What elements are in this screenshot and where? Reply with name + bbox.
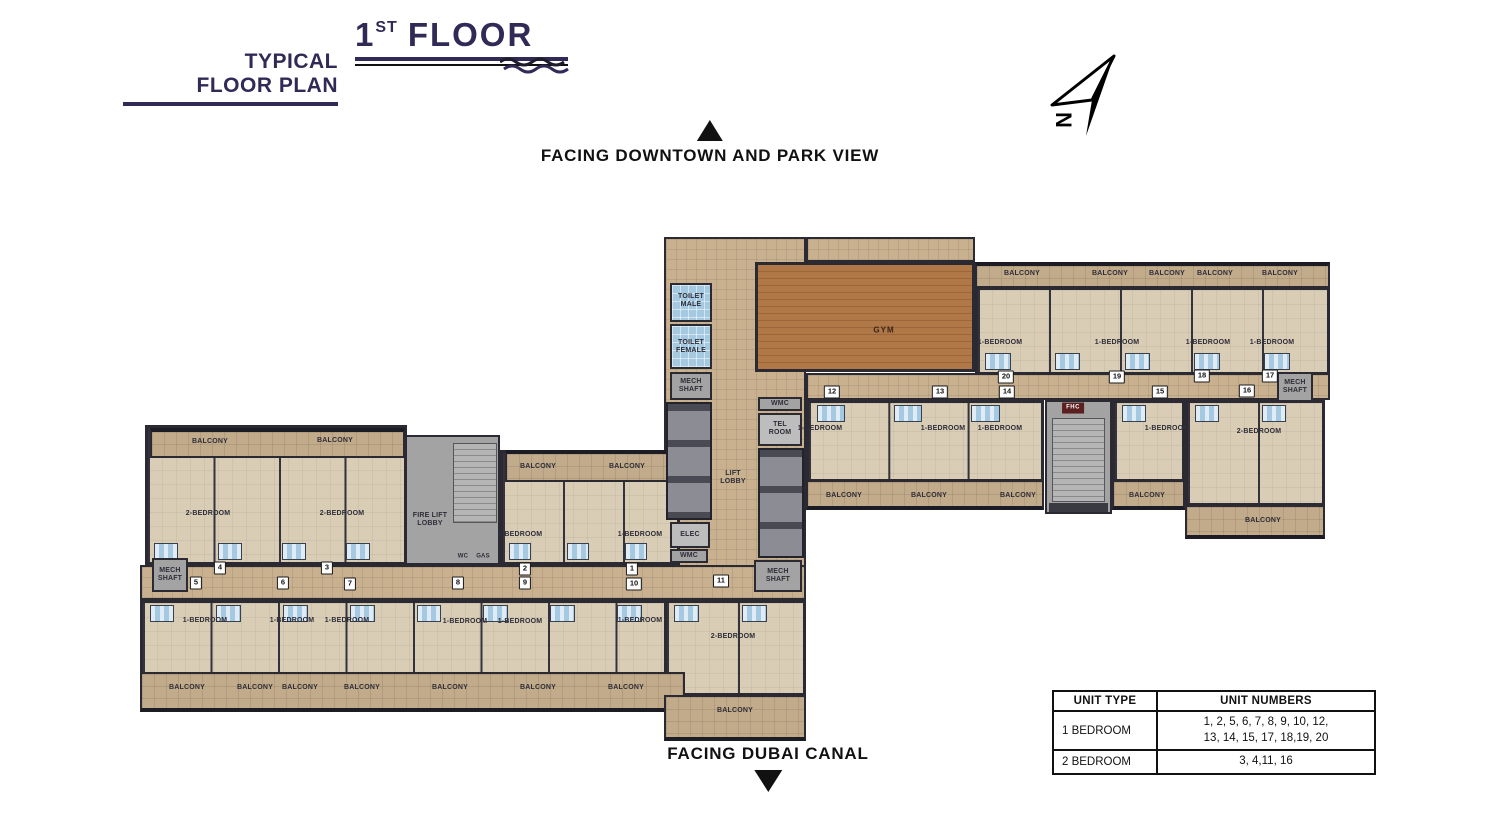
unit-number-chip: 5 (190, 577, 202, 590)
balcony-label: BALCONY (1004, 270, 1040, 278)
unit-number-chip: 6 (277, 577, 289, 590)
unit-type-cell: 1 BEDROOM (1053, 711, 1157, 750)
unit-number-chip: 12 (824, 386, 840, 399)
balcony-label: BALCONY (609, 463, 645, 471)
unit-number-chip: 2 (519, 563, 531, 576)
unit-number-chip: 18 (1194, 370, 1210, 383)
unit-number-chip: 3 (321, 562, 333, 575)
room-label: WC (458, 554, 468, 561)
room-label: WMC (680, 552, 698, 560)
unit-type-label: 1-BEDROOM (498, 531, 543, 539)
balcony-label: BALCONY (1000, 492, 1036, 500)
room-label: MECH SHAFT (766, 568, 790, 584)
balcony-label: BALCONY (520, 684, 556, 692)
room-label: GAS (476, 554, 490, 561)
unit-type-label: 1-BEDROOM (618, 531, 663, 539)
room-label: WMC (771, 400, 789, 408)
unit-number-chip: 16 (1239, 385, 1255, 398)
balcony-label: BALCONY (1149, 270, 1185, 278)
unit-type-label: 1-BEDROOM (1186, 339, 1231, 347)
balcony-label: BALCONY (1197, 270, 1233, 278)
legend-header-type: UNIT TYPE (1053, 691, 1157, 711)
unit-type-label: 1-BEDROOM (921, 425, 966, 433)
unit-number-chip: 20 (998, 371, 1014, 384)
unit-number-chip: 9 (519, 577, 531, 590)
legend-header-numbers: UNIT NUMBERS (1157, 691, 1375, 711)
unit-type-label: 1-BEDROOM (978, 339, 1023, 347)
unit-type-label: 2-BEDROOM (1237, 428, 1282, 436)
room-label: FIRE LIFT LOBBY (413, 512, 447, 528)
unit-type-label: 1-BEDROOM (1250, 339, 1295, 347)
unit-numbers-cell: 3, 4,11, 16 (1157, 750, 1375, 774)
unit-type-label: 2-BEDROOM (186, 510, 231, 518)
unit-type-cell: 2 BEDROOM (1053, 750, 1157, 774)
unit-type-label: 1-BEDROOM (1095, 339, 1140, 347)
table-row: 1 BEDROOM 1, 2, 5, 6, 7, 8, 9, 10, 12, 1… (1053, 711, 1375, 750)
unit-numbers-cell: 1, 2, 5, 6, 7, 8, 9, 10, 12, 13, 14, 15,… (1157, 711, 1375, 750)
room-label: ELEC (680, 531, 699, 539)
balcony-label: BALCONY (169, 684, 205, 692)
balcony-label: BALCONY (717, 707, 753, 715)
balcony-label: BALCONY (344, 684, 380, 692)
balcony-label: BALCONY (520, 463, 556, 471)
unit-legend-table: UNIT TYPE UNIT NUMBERS 1 BEDROOM 1, 2, 5… (1052, 690, 1376, 775)
balcony-label: BALCONY (1262, 270, 1298, 278)
balcony-label: BALCONY (432, 684, 468, 692)
unit-type-label: 2-BEDROOM (320, 510, 365, 518)
fhc-label: FHC (1062, 403, 1084, 414)
unit-number-chip: 4 (214, 562, 226, 575)
unit-type-label: 1-BEDROOM (618, 617, 663, 625)
unit-type-label: 2-BEDROOM (711, 633, 756, 641)
unit-number-chip: 10 (626, 578, 642, 591)
balcony-label: BALCONY (826, 492, 862, 500)
balcony-label: BALCONY (1129, 492, 1165, 500)
room-label: MECH SHAFT (1283, 379, 1307, 395)
unit-type-label: 1-BEDROOM (498, 618, 543, 626)
floor-plan-page: TYPICAL FLOOR PLAN 1STFLOOR N FACING DOW… (0, 0, 1500, 823)
room-label: MECH SHAFT (158, 567, 182, 583)
room-label: TEL ROOM (769, 421, 792, 437)
balcony-label: BALCONY (608, 684, 644, 692)
unit-number-chip: 14 (999, 386, 1015, 399)
room-label: TOILET MALE (678, 293, 704, 309)
unit-number-chip: 13 (932, 386, 948, 399)
unit-number-chip: 7 (344, 578, 356, 591)
unit-number-chip: 8 (452, 577, 464, 590)
unit-number-chip: 1 (626, 563, 638, 576)
room-label: MECH SHAFT (679, 378, 703, 394)
room-label: LIFT LOBBY (720, 470, 746, 486)
unit-type-label: 1-BEDROOM (978, 425, 1023, 433)
balcony-label: BALCONY (911, 492, 947, 500)
unit-number-chip: 11 (713, 575, 729, 588)
balcony-label: BALCONY (1245, 517, 1281, 525)
table-row: 2 BEDROOM 3, 4,11, 16 (1053, 750, 1375, 774)
unit-type-label: 1-BEDROOM (325, 617, 370, 625)
unit-number-chip: 19 (1109, 371, 1125, 384)
unit-type-label: 1-BEDROOM (183, 617, 228, 625)
balcony-label: BALCONY (1092, 270, 1128, 278)
unit-type-label: 1-BEDROOM (270, 617, 315, 625)
balcony-label: BALCONY (192, 438, 228, 446)
balcony-label: BALCONY (237, 684, 273, 692)
balcony-label: BALCONY (282, 684, 318, 692)
unit-type-label: 1-BEDROOM (443, 618, 488, 626)
room-label: TOILET FEMALE (676, 339, 706, 355)
unit-type-label: 1-BEDROOM (798, 425, 843, 433)
unit-type-label: 1-BEDROOM (1145, 425, 1190, 433)
balcony-label: BALCONY (317, 437, 353, 445)
unit-number-chip: 17 (1262, 370, 1278, 383)
unit-number-chip: 15 (1152, 386, 1168, 399)
gym-label: GYM (873, 325, 894, 334)
